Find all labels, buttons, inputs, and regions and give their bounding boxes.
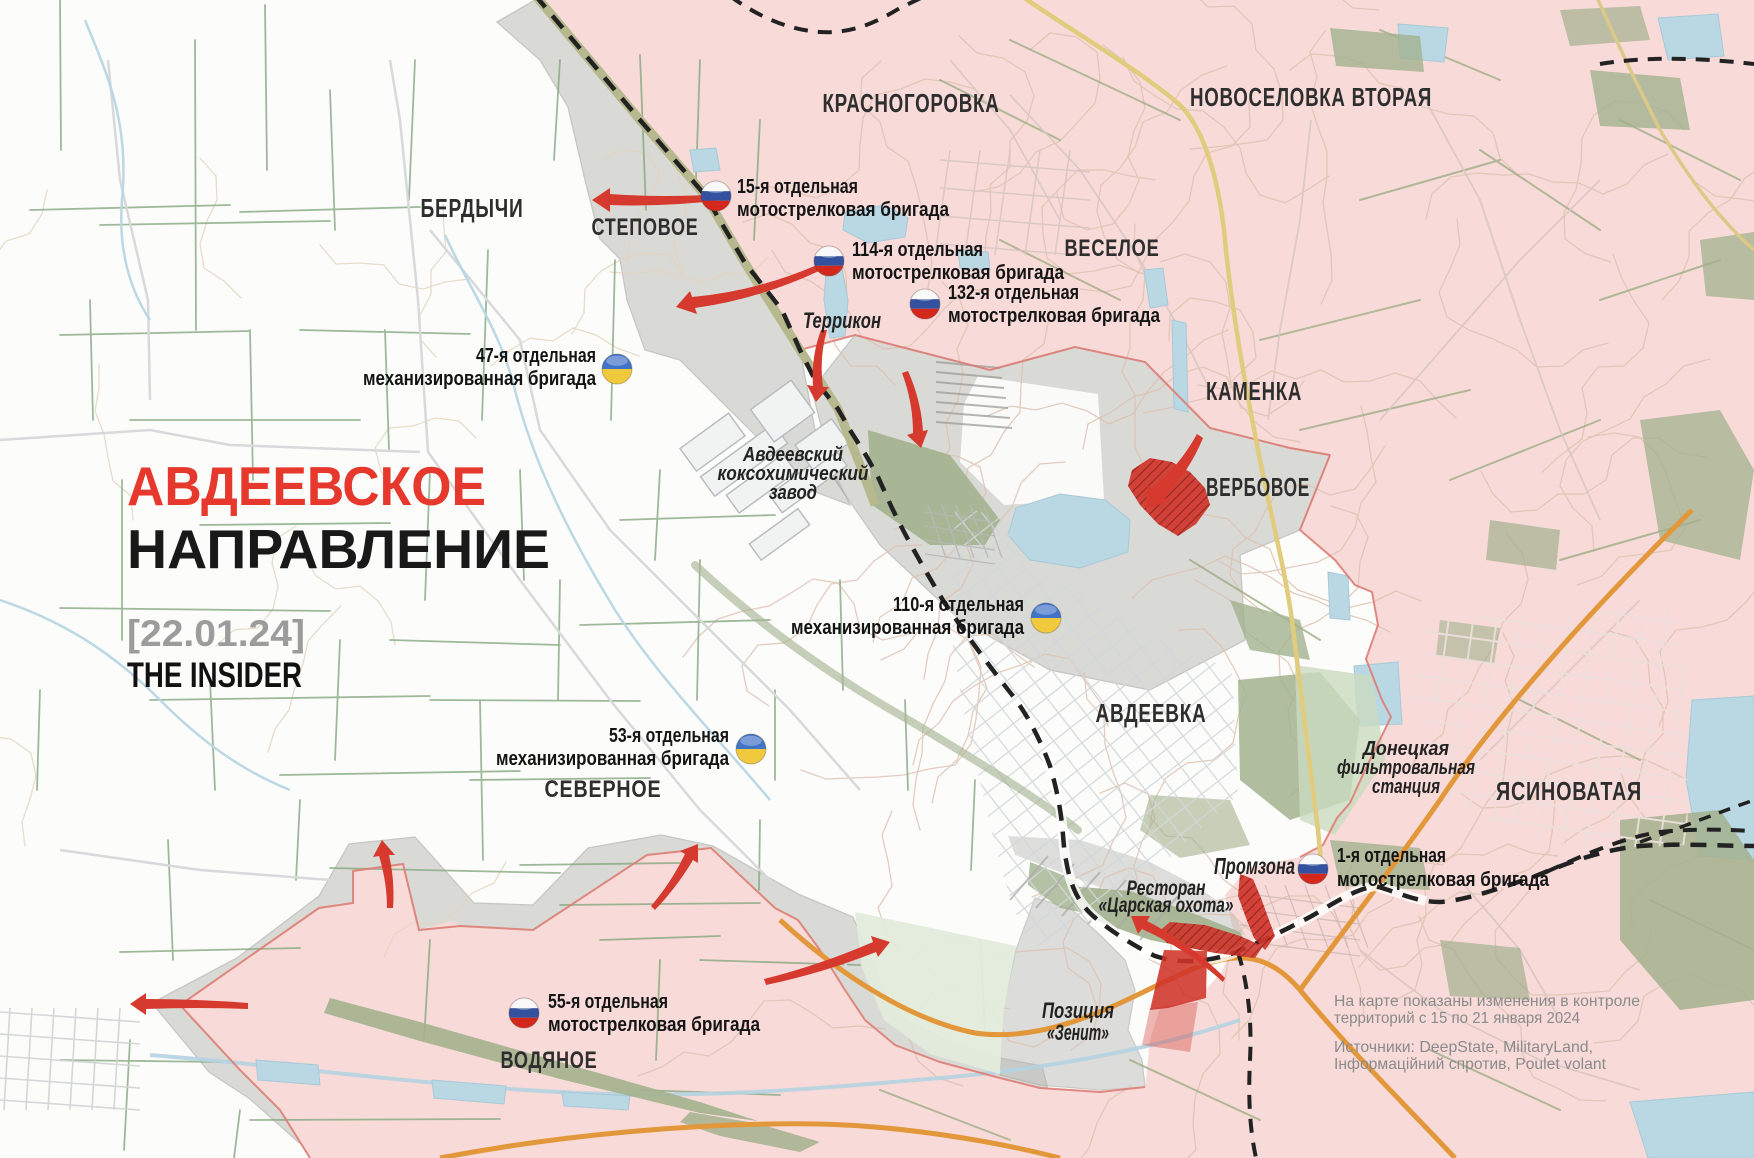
svg-text:АВДЕЕВКА: АВДЕЕВКА (1096, 698, 1207, 728)
svg-text:ЯСИНОВАТАЯ: ЯСИНОВАТАЯ (1496, 776, 1642, 806)
svg-text:ВЕСЕЛОЕ: ВЕСЕЛОЕ (1065, 235, 1160, 262)
svg-text:НОВОСЕЛОВКА ВТОРАЯ: НОВОСЕЛОВКА ВТОРАЯ (1190, 82, 1432, 112)
svg-text:БЕРДЫЧИ: БЕРДЫЧИ (421, 193, 524, 223)
svg-text:47-я отдельная: 47-я отдельная (476, 345, 596, 367)
svg-text:механизированная бригада: механизированная бригада (363, 368, 597, 390)
svg-text:132-я отдельная: 132-я отдельная (948, 282, 1079, 304)
svg-text:На карте показаны изменения в: На карте показаны изменения в контроле (1334, 993, 1640, 1010)
svg-text:мотострелковая бригада: мотострелковая бригада (1337, 869, 1550, 891)
svg-text:15-я отдельная: 15-я отдельная (737, 176, 858, 198)
svg-text:НАПРАВЛЕНИЕ: НАПРАВЛЕНИЕ (127, 518, 550, 580)
svg-text:«Зенит»: «Зенит» (1047, 1020, 1109, 1045)
svg-text:1-я отдельная: 1-я отдельная (1337, 845, 1446, 867)
svg-text:СТЕПОВОЕ: СТЕПОВОЕ (592, 214, 699, 241)
svg-text:мотострелковая бригада: мотострелковая бригада (852, 262, 1065, 284)
svg-text:мотострелковая бригада: мотострелковая бригада (548, 1014, 761, 1036)
svg-text:КРАСНОГОРОВКА: КРАСНОГОРОВКА (823, 88, 1000, 118)
svg-text:114-я отдельная: 114-я отдельная (852, 239, 983, 261)
svg-text:«Царская охота»: «Царская охота» (1099, 894, 1234, 917)
svg-text:THE INSIDER: THE INSIDER (127, 656, 302, 695)
svg-text:механизированная бригада: механизированная бригада (496, 748, 730, 770)
svg-text:мотострелковая бригада: мотострелковая бригада (948, 305, 1161, 327)
svg-text:Промзона: Промзона (1214, 853, 1295, 879)
svg-text:ВОДЯНОЕ: ВОДЯНОЕ (501, 1047, 598, 1074)
svg-text:завод: завод (769, 482, 817, 504)
svg-text:55-я отдельная: 55-я отдельная (548, 991, 668, 1013)
svg-text:ВЕРБОВОЕ: ВЕРБОВОЕ (1206, 472, 1310, 502)
svg-text:мотострелковая бригада: мотострелковая бригада (737, 199, 950, 221)
svg-text:СЕВЕРНОЕ: СЕВЕРНОЕ (545, 776, 662, 803)
svg-text:Террикон: Террикон (803, 308, 881, 333)
svg-text:станция: станция (1372, 776, 1440, 798)
svg-text:[22.01.24]: [22.01.24] (127, 613, 305, 654)
svg-text:Источники: DeepState, Military: Источники: DeepState, MilitaryLand, (1334, 1039, 1593, 1056)
svg-text:механизированная бригада: механизированная бригада (791, 617, 1025, 639)
svg-text:территорий с 15 по 21 января 2: территорий с 15 по 21 января 2024 (1334, 1010, 1580, 1027)
svg-text:110-я отдельная: 110-я отдельная (893, 594, 1024, 616)
svg-text:КАМЕНКА: КАМЕНКА (1206, 376, 1302, 406)
svg-text:53-я отдельная: 53-я отдельная (609, 725, 729, 747)
svg-text:АВДЕЕВСКОЕ: АВДЕЕВСКОЕ (127, 455, 486, 517)
svg-text:Інформаційний спротив, Poulet: Інформаційний спротив, Poulet volant (1334, 1056, 1607, 1073)
